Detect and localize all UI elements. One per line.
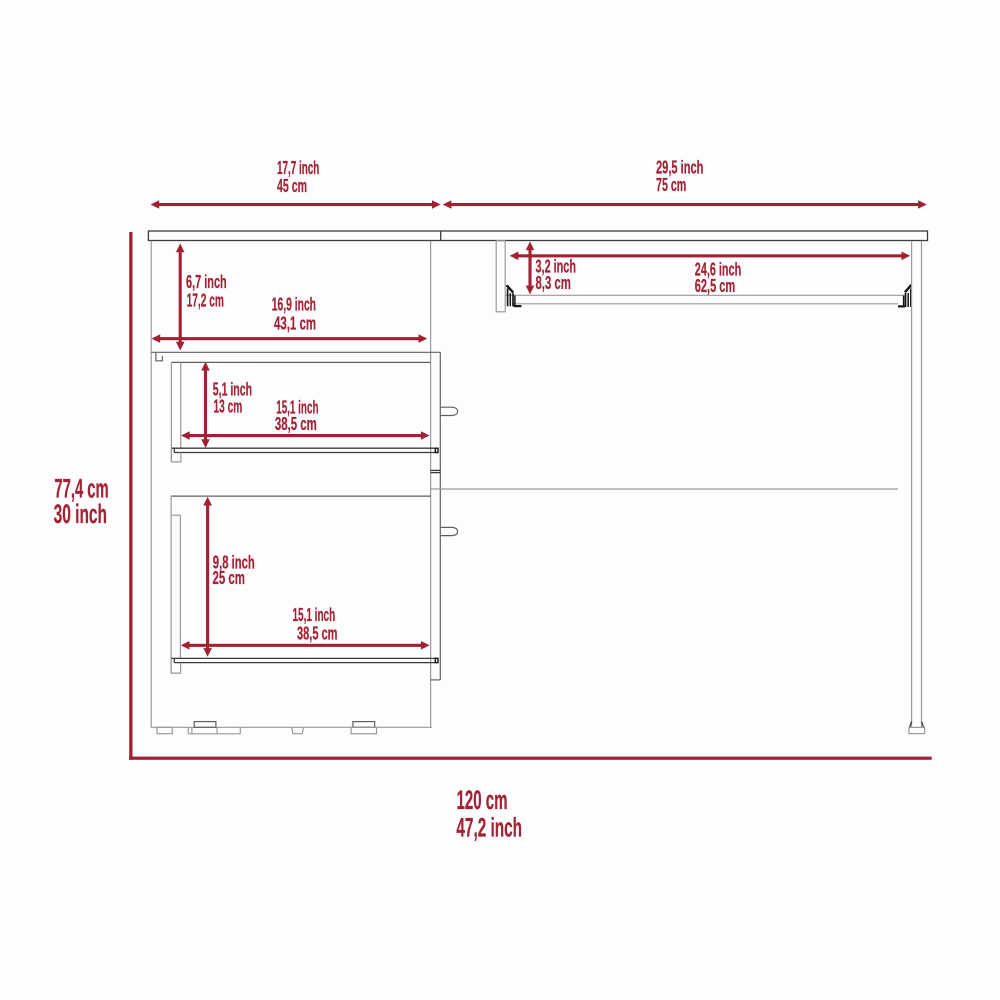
svg-text:30 inch: 30 inch — [54, 499, 107, 529]
svg-text:47,2 inch: 47,2 inch — [456, 813, 522, 843]
svg-text:62,5 cm: 62,5 cm — [695, 275, 735, 296]
svg-text:45 cm: 45 cm — [277, 175, 307, 196]
svg-text:38,5 cm: 38,5 cm — [275, 413, 317, 434]
svg-text:43,1 cm: 43,1 cm — [274, 312, 316, 333]
svg-text:120 cm: 120 cm — [457, 785, 508, 815]
svg-text:8,3 cm: 8,3 cm — [536, 272, 571, 293]
svg-text:25 cm: 25 cm — [213, 567, 246, 588]
svg-text:13 cm: 13 cm — [214, 396, 243, 417]
svg-text:17,2 cm: 17,2 cm — [187, 290, 224, 311]
svg-text:38,5 cm: 38,5 cm — [297, 623, 338, 644]
svg-text:75 cm: 75 cm — [656, 174, 686, 195]
